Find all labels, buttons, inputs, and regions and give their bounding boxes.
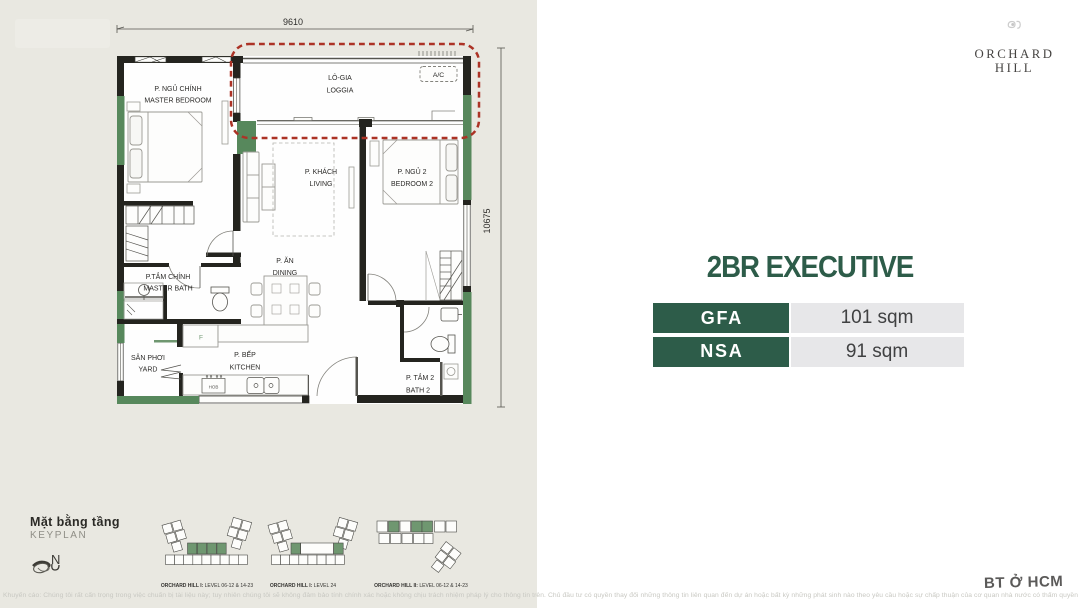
svg-text:LIVING: LIVING — [310, 181, 333, 188]
svg-text:KITCHEN: KITCHEN — [230, 365, 261, 372]
svg-text:BEDROOM 2: BEDROOM 2 — [391, 181, 433, 188]
svg-text:10675: 10675 — [482, 208, 492, 233]
svg-text:LÔ-GIA: LÔ-GIA — [328, 73, 352, 82]
svg-text:P. KHÁCH: P. KHÁCH — [305, 167, 337, 176]
svg-text:P. ĂN: P. ĂN — [276, 256, 293, 265]
svg-text:P. TẮM 2: P. TẮM 2 — [406, 373, 434, 382]
svg-text:P.TẮM CHÍNH: P.TẮM CHÍNH — [146, 272, 191, 281]
svg-text:P. NGỦ 2: P. NGỦ 2 — [397, 167, 426, 176]
svg-text:HOB: HOB — [209, 385, 219, 390]
svg-text:9610: 9610 — [283, 17, 303, 27]
svg-text:BATH 2: BATH 2 — [406, 388, 430, 395]
svg-text:A/C: A/C — [433, 72, 444, 79]
svg-text:YARD: YARD — [139, 367, 158, 374]
svg-text:ORCHARD HILL I: LEVEL 06-12 &: ORCHARD HILL I: LEVEL 06-12 & 14-23 — [161, 583, 253, 589]
svg-text:F: F — [199, 335, 203, 342]
svg-text:SÂN PHƠI: SÂN PHƠI — [131, 353, 165, 362]
svg-text:LOGGIA: LOGGIA — [327, 88, 354, 95]
svg-text:MASTER BATH: MASTER BATH — [143, 286, 192, 293]
svg-text:MASTER BEDROOM: MASTER BEDROOM — [144, 98, 211, 105]
svg-text:DINING: DINING — [273, 270, 298, 277]
svg-text:ORCHARD HILL II: LEVEL 06-12 &: ORCHARD HILL II: LEVEL 06-12 & 14-23 — [374, 583, 468, 589]
svg-text:ORCHARD HILL I: LEVEL 24: ORCHARD HILL I: LEVEL 24 — [270, 583, 336, 589]
svg-text:P. NGỦ CHÍNH: P. NGỦ CHÍNH — [154, 84, 201, 93]
